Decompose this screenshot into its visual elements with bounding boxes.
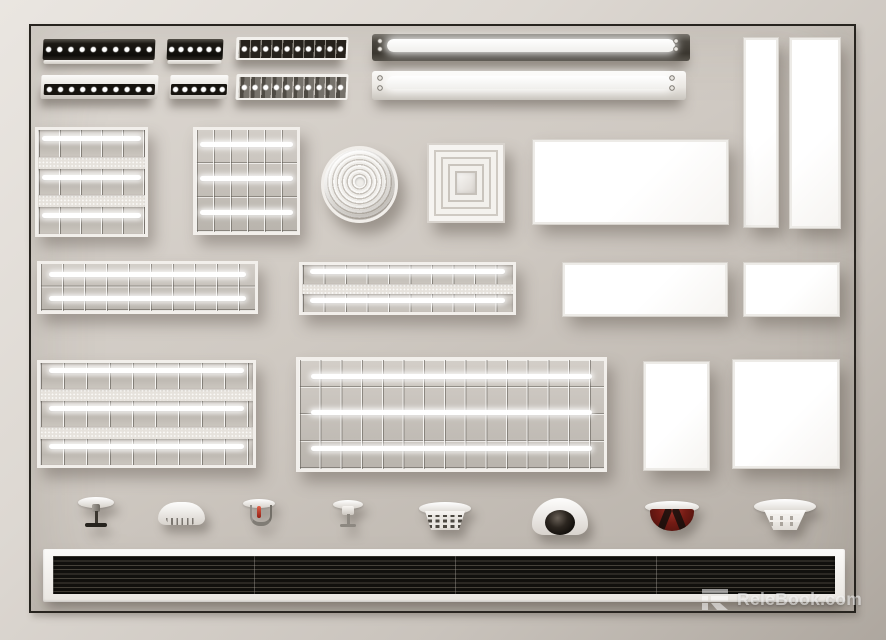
lamp-tube xyxy=(42,213,140,218)
screw-dots xyxy=(372,71,686,100)
led-spots xyxy=(238,40,346,58)
glass-bulb xyxy=(257,506,261,518)
louvre-cell-row xyxy=(302,265,513,284)
spot-face xyxy=(171,84,227,96)
heat-detector-vented xyxy=(419,502,471,530)
sprinkler-pin xyxy=(347,514,350,524)
lamp-tube xyxy=(49,272,247,277)
louvre-cell-row xyxy=(40,401,253,427)
lamp-tube xyxy=(42,175,140,180)
vent-slots xyxy=(166,518,197,525)
sprinkler-concealed xyxy=(333,500,363,532)
louvre-cell-row xyxy=(40,363,253,389)
lamp-tube xyxy=(49,296,247,301)
camera-lens xyxy=(545,510,575,535)
louvre-square-strips xyxy=(35,127,148,237)
led-spots xyxy=(171,84,227,96)
louvre-grid xyxy=(299,360,604,469)
panel-horizontal-medium xyxy=(563,263,727,316)
perforated-strip xyxy=(40,427,253,439)
louvre-strip-a xyxy=(37,261,258,314)
watermark: ReleBook.com xyxy=(700,587,862,611)
perforated-strip xyxy=(40,389,253,401)
linear-spot-black-short xyxy=(167,39,224,60)
lamp-tube xyxy=(42,136,140,141)
louvre-cell-row xyxy=(38,169,145,196)
panel-square xyxy=(733,360,839,468)
vent-slots xyxy=(770,514,800,526)
linear-spot-white-long xyxy=(40,75,158,99)
panel-vertical-narrow xyxy=(744,38,778,227)
led-spots xyxy=(167,39,224,60)
diffuser-round xyxy=(321,146,398,223)
smoke-detector-dome xyxy=(158,502,205,527)
screw-dots xyxy=(372,34,690,61)
lamp-tube xyxy=(49,406,245,411)
sprinkler-deflector xyxy=(85,523,107,527)
smoke-detector-vented xyxy=(754,499,816,532)
lamp-tube xyxy=(311,446,592,451)
detector-body xyxy=(425,511,465,530)
relebook-logo-icon xyxy=(700,587,730,611)
linear-spot-black-long xyxy=(43,39,156,60)
louvre-grid xyxy=(40,264,255,311)
ceiling-fixtures-render: ReleBook.com xyxy=(0,0,886,640)
panel-portrait xyxy=(644,362,709,470)
lamp-tube xyxy=(49,444,245,449)
louvre-strip-b xyxy=(299,262,516,315)
louvre-large-grid xyxy=(296,357,607,472)
louvre-cell-row xyxy=(38,207,145,234)
louvre-large-strips xyxy=(37,360,256,468)
detector-body xyxy=(764,510,806,530)
louvre-square-grid xyxy=(193,127,300,235)
led-spots xyxy=(43,39,156,60)
dome-stripe xyxy=(656,509,672,531)
louvre-cell-row xyxy=(302,294,513,313)
louvre-cell-row xyxy=(40,439,253,465)
sprinkler-deflector xyxy=(340,524,356,527)
batten-light-dark xyxy=(372,34,690,61)
lamp-tube xyxy=(311,374,592,379)
watermark-text: ReleBook.com xyxy=(737,589,862,610)
diffuser-core xyxy=(455,171,477,195)
perforated-strip xyxy=(302,284,513,294)
dome-stripe xyxy=(671,509,687,531)
sprinkler-red-bulb xyxy=(243,499,275,529)
lamp-tube xyxy=(310,269,504,274)
panel-horizontal-large xyxy=(533,140,728,224)
led-spots xyxy=(238,77,346,98)
louvre-cell-row xyxy=(38,130,145,157)
lamp-tube xyxy=(200,176,293,181)
dome-camera xyxy=(532,498,588,539)
lamp-tube xyxy=(310,298,504,303)
diffuser-square xyxy=(427,143,505,223)
sprinkler-pendent xyxy=(78,497,114,533)
panel-horizontal-small xyxy=(744,263,839,316)
vent-slots xyxy=(428,515,462,528)
lamp-tube xyxy=(49,368,245,373)
lamp-tube xyxy=(200,142,293,147)
spot-face xyxy=(44,84,156,96)
louvre-grid xyxy=(196,130,297,232)
sounder-dome xyxy=(650,509,694,531)
led-spots xyxy=(44,84,156,96)
linear-spot-white-short xyxy=(169,75,228,99)
perforated-strip xyxy=(38,195,145,207)
batten-light-white xyxy=(372,71,686,100)
lamp-tube xyxy=(311,410,592,415)
diffuser-hub xyxy=(355,177,365,187)
perforated-strip xyxy=(38,157,145,169)
panel-vertical-wide xyxy=(790,38,840,228)
sprinkler-frame xyxy=(250,505,272,526)
alarm-sounder-red xyxy=(645,501,699,532)
lamp-tube xyxy=(200,210,293,215)
linear-spot-cells-top xyxy=(235,37,348,60)
linear-spot-cells-bottom xyxy=(235,74,348,100)
